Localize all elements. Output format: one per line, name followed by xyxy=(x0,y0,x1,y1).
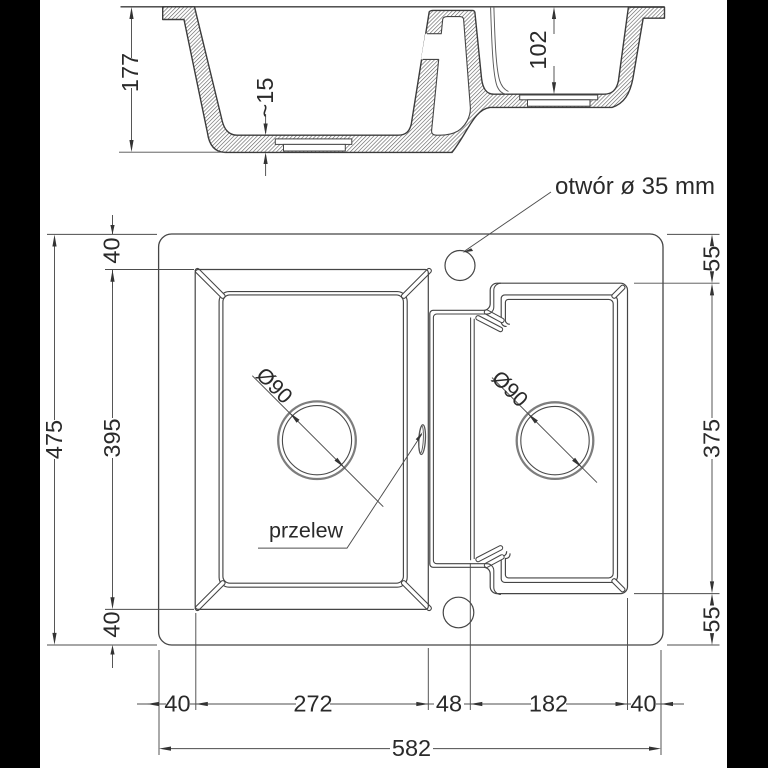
svg-text:475: 475 xyxy=(41,420,67,459)
svg-text:40: 40 xyxy=(630,691,656,717)
svg-text:~15: ~15 xyxy=(252,78,278,118)
svg-text:48: 48 xyxy=(436,691,462,717)
svg-text:przelew: przelew xyxy=(269,519,344,543)
svg-text:182: 182 xyxy=(529,691,568,717)
svg-text:40: 40 xyxy=(99,237,125,263)
svg-text:40: 40 xyxy=(164,691,190,717)
svg-text:otwór ø 35 mm: otwór ø 35 mm xyxy=(555,173,715,200)
svg-text:55: 55 xyxy=(699,606,725,632)
svg-text:582: 582 xyxy=(392,735,431,761)
svg-text:40: 40 xyxy=(99,611,125,637)
svg-text:177: 177 xyxy=(117,53,143,92)
svg-text:102: 102 xyxy=(525,30,551,69)
svg-text:272: 272 xyxy=(293,691,332,717)
svg-text:55: 55 xyxy=(699,246,725,272)
svg-text:375: 375 xyxy=(699,419,725,458)
svg-text:395: 395 xyxy=(99,418,125,457)
